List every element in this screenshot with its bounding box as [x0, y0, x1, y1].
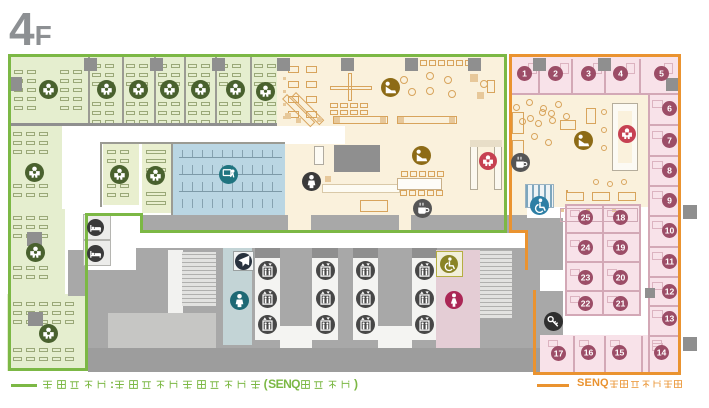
svg-text:3: 3: [586, 68, 591, 78]
svg-text:1: 1: [522, 68, 527, 78]
svg-text:7: 7: [667, 135, 672, 145]
svg-text:10: 10: [664, 225, 674, 235]
svg-text:8: 8: [667, 165, 672, 175]
svg-text:24: 24: [580, 242, 590, 252]
svg-text:21: 21: [615, 298, 625, 308]
svg-text:18: 18: [615, 212, 625, 222]
svg-text:20: 20: [615, 272, 625, 282]
svg-text:11: 11: [664, 256, 673, 266]
svg-text:16: 16: [583, 347, 593, 357]
svg-text:9: 9: [667, 195, 672, 205]
svg-text:22: 22: [580, 298, 590, 308]
svg-text:15: 15: [614, 347, 624, 357]
svg-text:14: 14: [656, 347, 666, 357]
svg-text:5: 5: [659, 68, 664, 78]
svg-text:25: 25: [580, 212, 590, 222]
svg-text:6: 6: [667, 103, 672, 113]
svg-text:2: 2: [553, 68, 558, 78]
svg-text:23: 23: [580, 272, 590, 282]
svg-text:4: 4: [618, 68, 623, 78]
svg-text:12: 12: [664, 286, 674, 296]
svg-text:17: 17: [553, 348, 563, 358]
svg-text:13: 13: [664, 313, 674, 323]
svg-text:19: 19: [615, 242, 625, 252]
